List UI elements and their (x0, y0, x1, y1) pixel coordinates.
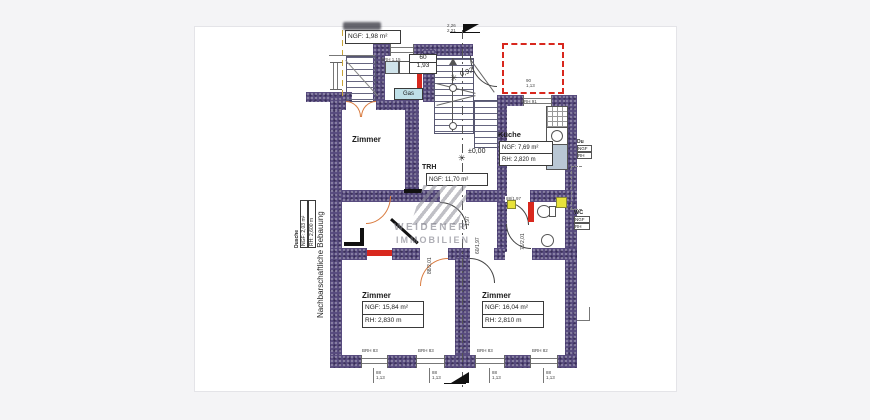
wall-corridor-top-c (530, 190, 577, 202)
wall-corridor-bottom-e (532, 248, 577, 260)
dim-tick (373, 368, 374, 383)
room-label-zimmer-top: Zimmer (352, 136, 381, 144)
du-side-ngf: NGF (577, 145, 592, 152)
cut-label-smudge (343, 22, 381, 30)
stair-post (449, 122, 457, 130)
storage-ngf-label: NGF: 1,98 m² (345, 30, 401, 44)
wall-bottom-c (443, 355, 475, 368)
room-label-trh: TRH (422, 164, 436, 171)
dusche-rh: RH: 2,600 m (308, 200, 316, 248)
porch-window (330, 62, 342, 90)
boundary-line (342, 30, 343, 100)
door-size-label: 76/2,01 (521, 226, 527, 250)
gas-label: Gas (394, 88, 423, 100)
wall-kitchen-top-a (497, 95, 523, 106)
wall-entry-a (330, 100, 346, 110)
right-margin-line (589, 307, 590, 321)
wall-corridor-bottom-a (330, 248, 367, 260)
neighbour-note: Nachbarschaftliche Bebauung (316, 168, 325, 318)
wc-sink (541, 234, 554, 247)
meter-box (385, 61, 399, 74)
red-wall-mark-wc (528, 202, 534, 222)
watermark-line1: WEIDENER (394, 223, 468, 233)
door-top-size-box: 60 1,93 (409, 54, 437, 74)
wall-left (330, 97, 342, 368)
window (475, 355, 505, 368)
floorplan-scan: BRH 83 BRH 83 BRH 83 BRH 82 881,13 881,1… (0, 0, 870, 420)
window-brh-label: BRH 82 (532, 348, 548, 353)
stove (546, 106, 568, 128)
dusche-label-group: Dusche NGF: 2,03 m² RH: 2,600 m (294, 186, 316, 248)
red-wall-mark (417, 74, 422, 89)
door-size-label: 60/1,97 (476, 228, 482, 254)
room-label-zimmer-bl: Zimmer (362, 292, 391, 300)
wall-zimmertop-right (405, 100, 419, 192)
kueche-rh-label: RH: 2,820 m (499, 153, 553, 166)
window (361, 355, 388, 368)
du-side-rh: RH (577, 152, 592, 159)
section-arrow-bottom (451, 372, 469, 383)
dim-tick (489, 368, 490, 383)
marker-box (556, 197, 567, 208)
porch-window-brh: BRH 1,15 (381, 57, 401, 62)
wall-entry-b (376, 100, 406, 110)
window (530, 355, 558, 368)
wall-corridor-bottom-d (494, 248, 505, 260)
wall-bottom-e (556, 355, 577, 368)
door-size-label: 88/1,97 (506, 196, 521, 201)
level-mark-zero: ±0,00 (468, 148, 485, 155)
dim-tick (429, 368, 430, 383)
wall-corridor-top-b (466, 190, 505, 202)
section-flag-top (463, 24, 479, 33)
watermark-line2: IMMOBILIEN (396, 236, 470, 245)
wall-bottom-d (503, 355, 530, 368)
zimmer-br-rh: RH: 2,810 m (482, 314, 544, 328)
door-size-label: 88/2,01 (428, 250, 434, 274)
dim-tick (543, 368, 544, 383)
dim-text: 881,13 (432, 370, 441, 381)
zimmer-bl-ngf: NGF: 15,84 m² (362, 301, 424, 315)
stair-rail (452, 58, 453, 132)
wall-corridor-bottom-b (392, 248, 420, 260)
zimmer-bl-rh: RH: 2,830 m (362, 314, 424, 328)
level-symbol: ✳ (450, 74, 458, 83)
red-wall-mark-corridor (367, 250, 392, 256)
level-symbol: ✳ (458, 154, 466, 163)
wall-bottom-a (330, 355, 361, 368)
toilet-tank (549, 206, 556, 217)
dashed-bracket (571, 166, 582, 210)
wc-side-rh: RH (574, 223, 590, 230)
window-brh-label: BRH 83 (362, 348, 378, 353)
porch-outline (329, 55, 375, 56)
main-stair-lower-flight (474, 100, 498, 148)
window-brh-label: BRH 83 (418, 348, 434, 353)
new-partition-bar (404, 189, 422, 193)
dim-text: 881,13 (376, 370, 385, 381)
du-side-label-group: Du NGF RH (577, 139, 592, 159)
stair-direction-arrow (449, 58, 457, 65)
kitchen-window-brh: BRH 91 (521, 99, 537, 104)
room-label-zimmer-br: Zimmer (482, 292, 511, 300)
wc-side-label-group: WC NGF RH (574, 210, 590, 230)
kitchen-window-dim: 901,13 (526, 78, 535, 89)
window (416, 355, 445, 368)
dusche-ngf: NGF: 2,03 m² (300, 200, 308, 248)
stair-post (449, 84, 457, 92)
wc-side-ngf: NGF (574, 216, 590, 223)
section-flag-dims: 2,262,21 (447, 23, 456, 34)
wall-bottom-b (386, 355, 416, 368)
new-partition-corner (344, 228, 364, 246)
dim-text: 881,13 (546, 370, 555, 381)
room-label-kueche: Küche (498, 131, 521, 139)
dim-text: 881,13 (492, 370, 501, 381)
window-brh-label: BRH 83 (477, 348, 493, 353)
zimmer-br-ngf: NGF: 16,04 m² (482, 301, 544, 315)
